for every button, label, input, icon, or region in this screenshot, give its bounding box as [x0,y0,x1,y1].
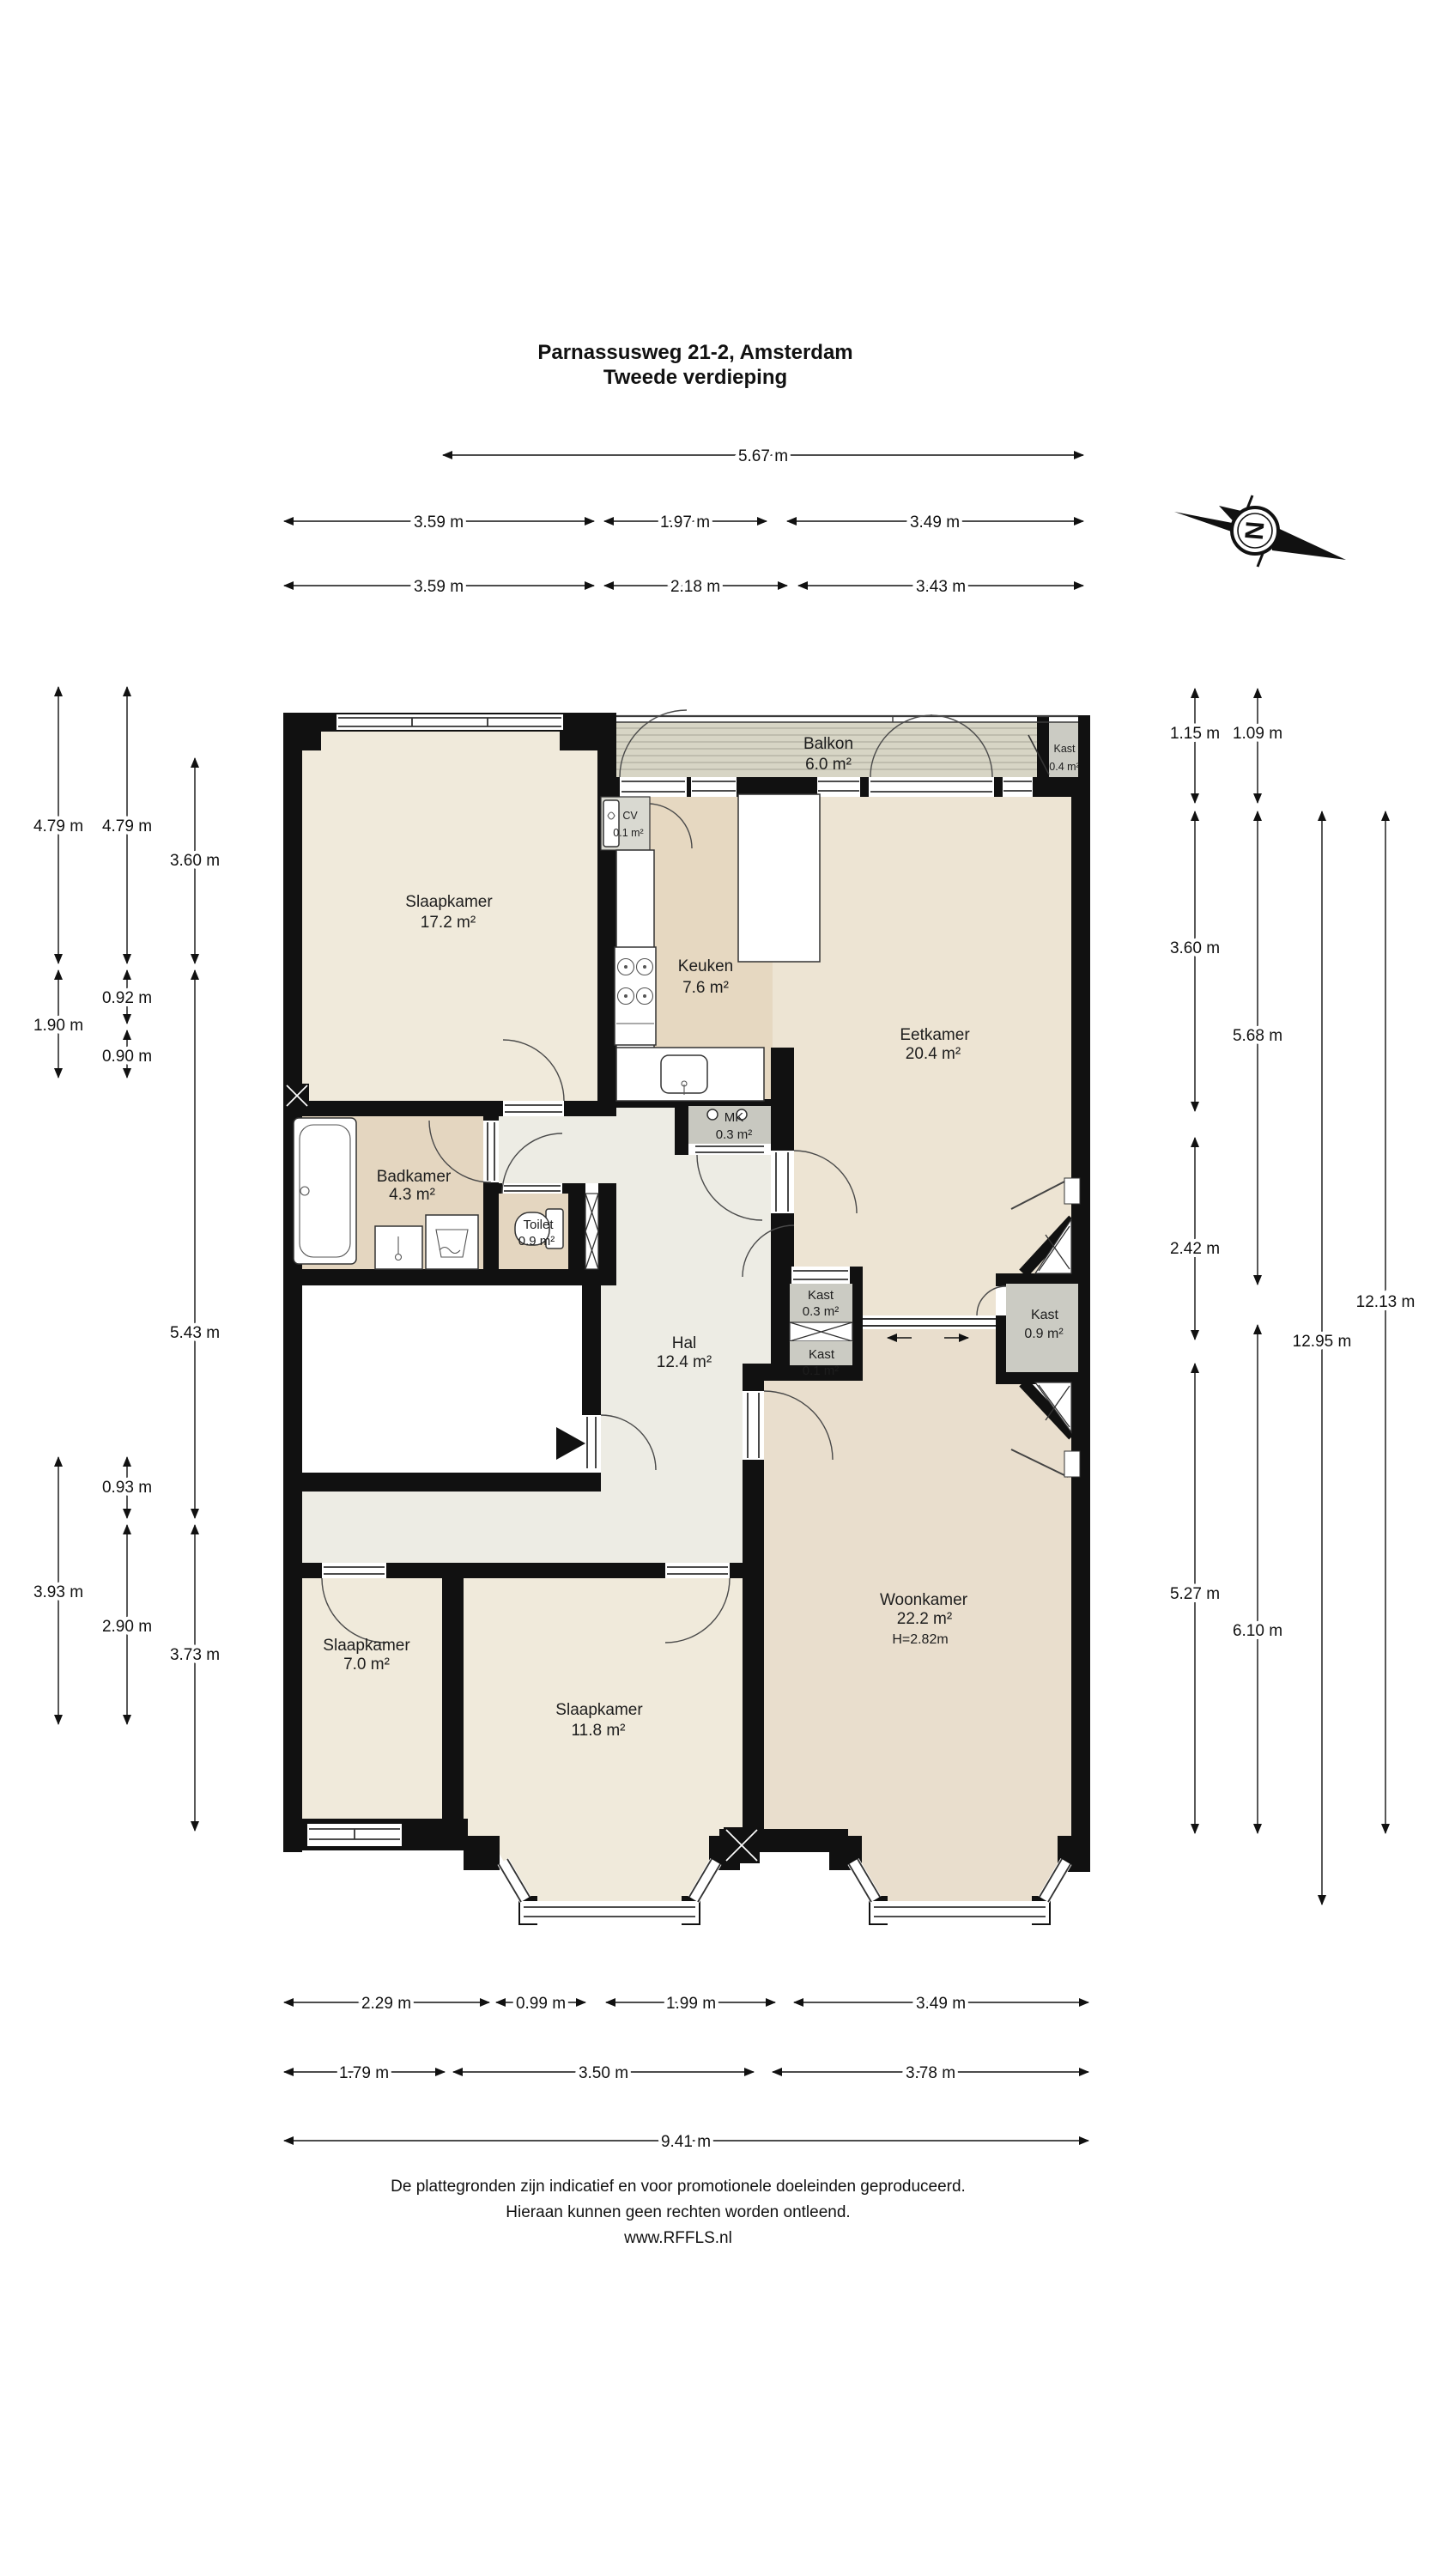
stairwell-void [302,1285,582,1473]
dim-label: 4.79 m [102,817,152,835]
mk-door-opening [688,1144,771,1155]
sliding-door-track [863,1315,996,1329]
woonkamer-height: H=2.82m [892,1632,948,1647]
slaapkamer2-label: Slaapkamer [323,1637,410,1655]
slaapkamer3-door-opening [665,1563,730,1578]
window-keuken-balkon [691,777,737,797]
kast03-area: 0.3 m² [803,1304,840,1319]
toilet-label: Toilet [523,1218,554,1232]
hal-floor-lower [601,1378,764,1563]
dim-label: 0.99 m [516,1995,566,2013]
toilet-shaft [585,1194,598,1269]
flue-stub-upper [1064,1178,1080,1204]
eetkamer-label: Eetkamer [900,1026,970,1044]
dim-label: 3.73 m [170,1646,220,1664]
kitchen-tall-unit [738,794,820,962]
dim-label: 3.60 m [170,852,220,870]
dim-label: 5.43 m [170,1324,220,1342]
dim-label: 1.15 m [1170,725,1220,743]
compass-east-spike [1270,525,1346,560]
hal-area: 12.4 m² [657,1353,712,1371]
badkamer-area: 4.3 m² [389,1186,435,1204]
dim-label: 0.90 m [102,1048,152,1066]
dim-label: 2.42 m [1170,1240,1220,1258]
window-slaapkamer1 [336,714,563,730]
dim-label: 1.79 m [339,2064,389,2082]
title-floor: Tweede verdieping [603,366,787,389]
dim-label: 12.13 m [1356,1293,1416,1311]
footer-line2: Hieraan kunnen geen rechten worden ontle… [506,2203,850,2221]
mk-area: 0.3 m² [716,1127,753,1142]
badkamer-label: Badkamer [377,1168,452,1186]
slaapkamer3-label: Slaapkamer [555,1701,643,1719]
dim-label: 9.41 m [661,2133,711,2151]
dim-label: 2.29 m [361,1995,411,2013]
window-eetkamer-balkon-2 [1003,777,1033,797]
toilet-door-opening [502,1183,562,1194]
slaapkamer1-area: 17.2 m² [421,914,476,932]
kast01-label: Kast [809,1347,835,1362]
kast03-door-opening [791,1267,850,1284]
woonkamer-label: Woonkamer [880,1591,968,1609]
washing-machine-icon [426,1215,478,1269]
dim-label: 3.50 m [579,2064,628,2082]
meter-icon [707,1109,718,1120]
slaapkamer1-label: Slaapkamer [405,893,493,911]
mk-label: MK [724,1110,744,1125]
dim-label: 3.49 m [910,513,960,532]
kast09-area: 0.9 m² [1024,1327,1064,1341]
dim-label: 3.78 m [906,2064,955,2082]
slaapkamer2-floor [302,1578,442,1820]
eetkamer-door-opening [771,1151,794,1213]
dim-label: 3.49 m [916,1995,966,2013]
kast01-area: 0.1 m² [803,1364,840,1378]
slaapkamer2-area: 7.0 m² [343,1656,390,1674]
dim-label: 2.90 m [102,1618,152,1636]
compass-rose: N [1174,495,1346,567]
dim-label: 12.95 m [1293,1333,1352,1351]
badkamer-door-opening [483,1121,499,1182]
keuken-passage-floor [738,962,773,1048]
floorplan-canvas: Parnassusweg 21-2, Amsterdam Tweede verd… [0,0,1449,2576]
keuken-label: Keuken [678,957,733,975]
footer-disclaimer: De plattegronden zijn indicatief en voor… [391,2178,966,2247]
kast09-label: Kast [1031,1308,1059,1322]
dimensions-bottom: 2.29 m 0.99 m 1.99 m 3.49 m 1.79 m 3.50 … [284,1995,1088,2151]
dim-label: 0.92 m [102,989,152,1007]
hal-label: Hal [672,1334,697,1352]
dimensions-top: 5.67 m 3.59 m 1.97 m 3.49 m 3.59 m 2.18 … [284,447,1083,596]
dim-label: 0.93 m [102,1479,152,1497]
title-address: Parnassusweg 21-2, Amsterdam [537,341,852,364]
slaapkamer3-area: 11.8 m² [571,1722,625,1740]
dimensions-left: 4.79 m 4.79 m 3.60 m 1.90 m 0.92 m 0.90 … [33,687,220,1831]
balkon-area: 6.0 m² [805,756,852,774]
woonkamer-door-opening [743,1391,764,1460]
floorplan-page: Parnassusweg 21-2, Amsterdam Tweede verd… [0,0,1449,2576]
woonkamer-area: 22.2 m² [897,1610,952,1628]
eetkamer-area: 20.4 m² [906,1045,961,1063]
footer-website: www.RFFLS.nl [623,2229,732,2247]
cv-boiler-icon [603,800,619,847]
balkon-door-opening-2 [869,777,994,797]
bay2-window-bottom [870,1901,1049,1923]
dim-label: 3.59 m [414,513,464,532]
hal-vestibule-floor [499,1114,616,1183]
balkon-door-opening-1 [620,777,687,797]
dimensions-right: 1.15 m 1.09 m 3.60 m 5.68 m 2.42 m 5.27 … [1170,689,1415,1905]
dim-label: 1.90 m [33,1017,83,1035]
toilet-area: 0.9 m² [518,1234,555,1249]
slaapkamer2-door-opening [322,1563,386,1578]
dim-label: 5.68 m [1233,1027,1282,1045]
kast04-label: Kast [1053,743,1076,755]
cv-area: 0.1 m² [613,827,643,839]
window-eetkamer-balkon-1 [817,777,860,797]
dim-label: 1.09 m [1233,725,1282,743]
flue-stub-lower [1064,1451,1080,1477]
dim-label: 3.93 m [33,1583,83,1601]
woonkamer-floor [764,1325,1073,1836]
kast09-door-opening [996,1286,1006,1315]
bathtub-icon [294,1118,356,1264]
compass-north-label: N [1239,520,1269,541]
dim-label: 1.97 m [660,513,710,532]
page-title: Parnassusweg 21-2, Amsterdam Tweede verd… [537,341,852,389]
cv-label: CV [622,810,638,822]
keuken-area: 7.6 m² [682,979,729,997]
dim-label: 1.99 m [666,1995,716,2013]
dim-label: 3.59 m [414,578,464,596]
dim-label: 5.67 m [738,447,788,465]
dim-label: 2.18 m [670,578,720,596]
bay1-window-bottom [520,1901,699,1923]
slaapkamer1-door-opening [503,1101,564,1116]
footer-line1: De plattegronden zijn indicatief en voor… [391,2178,966,2196]
dim-label: 6.10 m [1233,1622,1282,1640]
dim-label: 3.60 m [1170,939,1220,957]
hal-floor-west [302,1492,601,1563]
dim-label: 3.43 m [916,578,966,596]
dim-label: 4.79 m [33,817,83,835]
entrance-door-opening [582,1415,601,1470]
balkon-label: Balkon [803,735,853,753]
dim-label: 5.27 m [1170,1585,1220,1603]
kast04-area: 0.4 m² [1049,761,1079,773]
kast03-label: Kast [808,1288,834,1303]
stove-icon [615,947,656,1045]
